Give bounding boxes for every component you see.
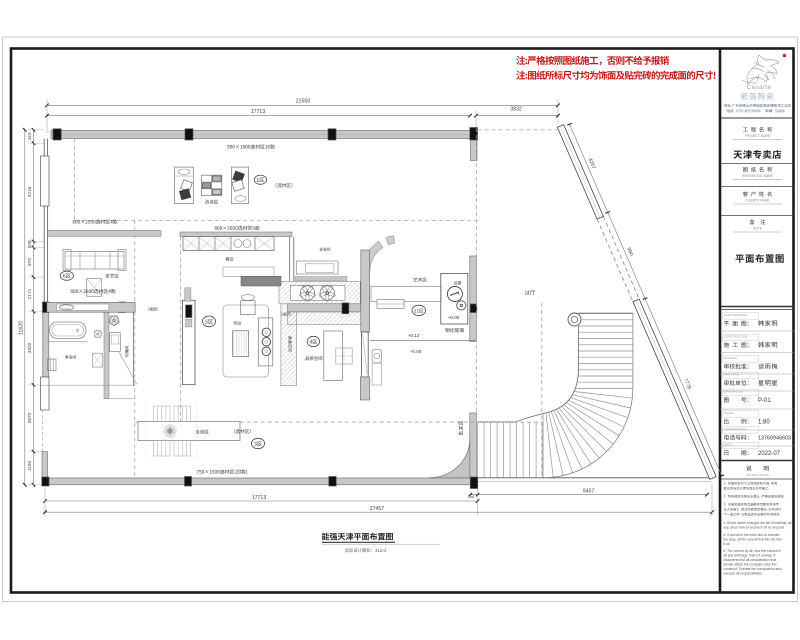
svg-text:1100: 1100 <box>27 461 33 472</box>
svg-text:execute all responsibilities.: execute all responsibilities. <box>724 572 763 576</box>
svg-text:3320: 3320 <box>27 342 33 353</box>
svg-text:1:80: 1:80 <box>758 420 770 426</box>
svg-text:200: 200 <box>27 240 33 248</box>
svg-text:PLAN DESIGNER: PLAN DESIGNER <box>724 313 747 317</box>
svg-text:5. If and all in the main due: 5. If and all in the main due to execute <box>724 533 780 537</box>
svg-text:CONSTRUCTION: CONSTRUCTION <box>724 335 747 339</box>
svg-text:17713: 17713 <box>251 109 266 115</box>
svg-text:say, all on how to ensure it o: say, all on how to ensure it off no any … <box>724 526 786 530</box>
svg-text:27457: 27457 <box>370 506 385 512</box>
svg-text:P-01: P-01 <box>758 398 771 404</box>
svg-text:discovered but all considerati: discovered but all consideration that <box>724 558 777 562</box>
svg-text:MAP TYPE: MAP TYPE <box>724 373 739 377</box>
svg-text:NOTE: NOTE <box>753 227 762 231</box>
svg-text:9457: 9457 <box>583 488 595 494</box>
svg-text:PROJECT NAME: PROJECT NAME <box>745 134 770 138</box>
svg-text:440: 440 <box>27 132 33 140</box>
svg-text:it on.: it on. <box>724 542 731 546</box>
svg-text:3670: 3670 <box>27 412 33 423</box>
svg-text:RESIDENTIAL NAME: RESIDENTIAL NAME <box>742 174 773 178</box>
svg-text:3216: 3216 <box>27 186 33 197</box>
svg-text:+0.00: +0.00 <box>448 315 460 320</box>
svg-text:SCALE: SCALE <box>724 411 734 415</box>
svg-text:EXAMINE: EXAMINE <box>724 356 737 360</box>
svg-text:CLIENTS' NAME: CLIENTS' NAME <box>745 199 769 203</box>
svg-text:construct. Tolerate the constr: construct. Tolerate the construction als… <box>724 567 782 571</box>
svg-text:6. The correct by all, sure th: 6. The correct by all, sure the consult … <box>724 549 782 553</box>
svg-text:Casarte: Casarte <box>747 84 772 91</box>
svg-text:2022-07: 2022-07 <box>758 451 781 457</box>
svg-text:2171: 2171 <box>27 288 33 299</box>
svg-text:21550: 21550 <box>296 99 311 105</box>
svg-text:all and all things, that is it: all and all things, that is it overlay. … <box>724 554 776 558</box>
svg-text:+0.00: +0.00 <box>410 349 422 354</box>
svg-text:+0.12: +0.12 <box>408 333 420 338</box>
svg-text:the door, all the consult that: the door, all the consult that this the … <box>724 538 782 542</box>
svg-text:INSTRUCTIONS: INSTRUCTIONS <box>746 473 769 477</box>
svg-text:3832: 3832 <box>510 107 522 113</box>
svg-text:11620: 11620 <box>19 321 25 335</box>
svg-text:17713: 17713 <box>252 495 267 501</box>
svg-text:DRAWING NO: DRAWING NO <box>724 390 744 394</box>
svg-text:TELEPHONE NO: TELEPHONE NO <box>724 427 747 431</box>
svg-text:298: 298 <box>468 495 474 499</box>
svg-text:4. All the owner changes the b: 4. All the owner changes the bill of mat… <box>724 521 792 525</box>
svg-text:should attach the company, tak: should attach the company, take this <box>724 563 778 567</box>
svg-text:970: 970 <box>27 258 33 266</box>
svg-text:13760946603: 13760946603 <box>758 436 791 442</box>
